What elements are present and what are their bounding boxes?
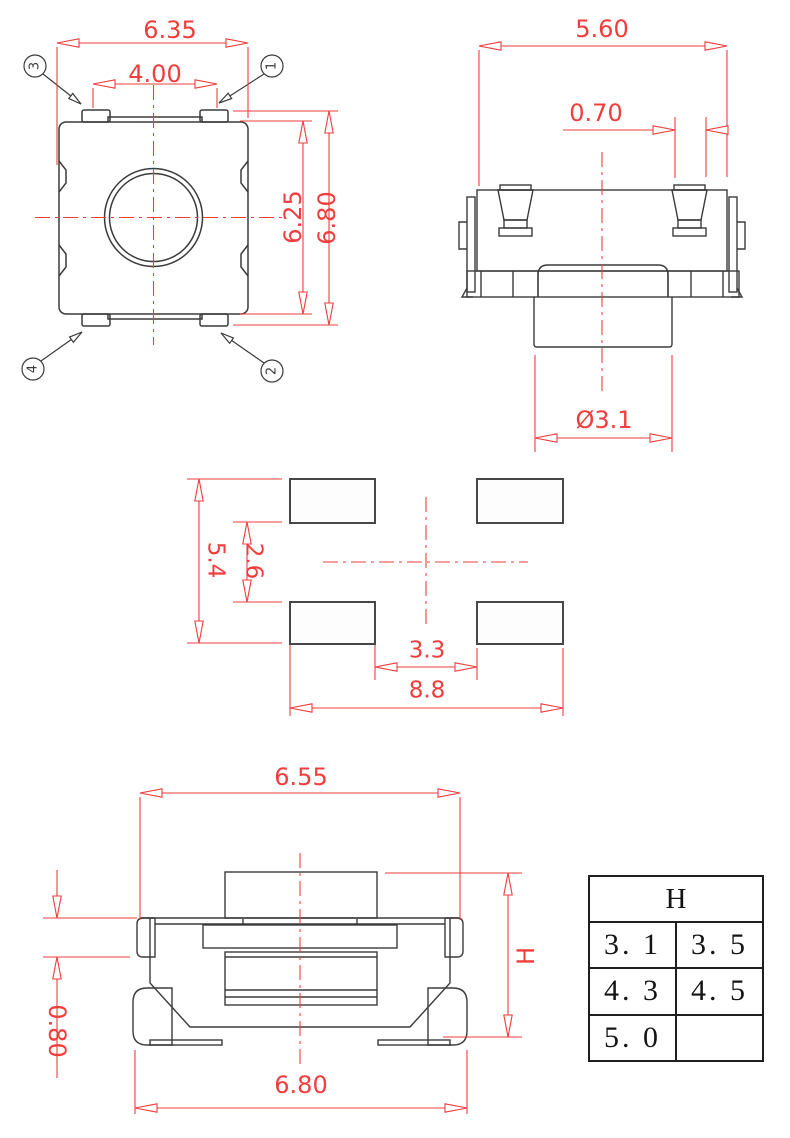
height-table-cell [676,1015,763,1061]
height-table-cell: 3. 1 [589,922,676,968]
front-stem [225,872,377,918]
pin-number-4: 4 [27,365,40,373]
dim-side-pin-offset: 0.70 [569,101,622,125]
height-table-header: H [589,876,763,922]
dim-land-inner-h: 3.3 [409,640,446,663]
side-view-lug-right [672,185,707,236]
pin-number-2: 2 [266,367,279,375]
height-table-cell: 5. 0 [589,1015,676,1061]
height-table-cell: 4. 3 [589,968,676,1014]
dim-top-width-pins: 4.00 [128,62,181,86]
height-table-cell: 4. 5 [676,968,763,1014]
dim-front-width-top: 6.55 [274,765,327,789]
dim-land-outer-v: 5.4 [204,542,227,579]
height-table-cell: 3. 5 [676,922,763,968]
pin-number-3: 3 [29,62,42,70]
side-view-lug-left [498,185,533,236]
dim-side-width: 5.60 [575,17,628,41]
dim-top-height-body: 6.25 [281,190,305,243]
dim-land-inner-v: 2.6 [242,543,265,580]
dim-land-outer-h: 8.8 [409,680,446,703]
dim-front-width-bottom: 6.80 [274,1073,327,1097]
actuator-stem [534,297,672,347]
dim-top-width-outer: 6.35 [143,18,196,42]
pin-callouts [22,55,283,382]
height-options-table: H 3. 1 3. 5 4. 3 4. 5 5. 0 [588,875,764,1062]
pin-number-1: 1 [266,62,279,70]
dim-actuator-diameter: Ø3.1 [575,408,632,432]
technical-drawing: 6.35 4.00 6.25 6.80 5.60 0.70 Ø3.1 5.4 2… [0,0,790,1138]
dim-top-height-overall: 6.80 [315,191,339,244]
dim-front-step: 0.80 [45,1004,69,1057]
dim-front-height: H [514,947,538,965]
